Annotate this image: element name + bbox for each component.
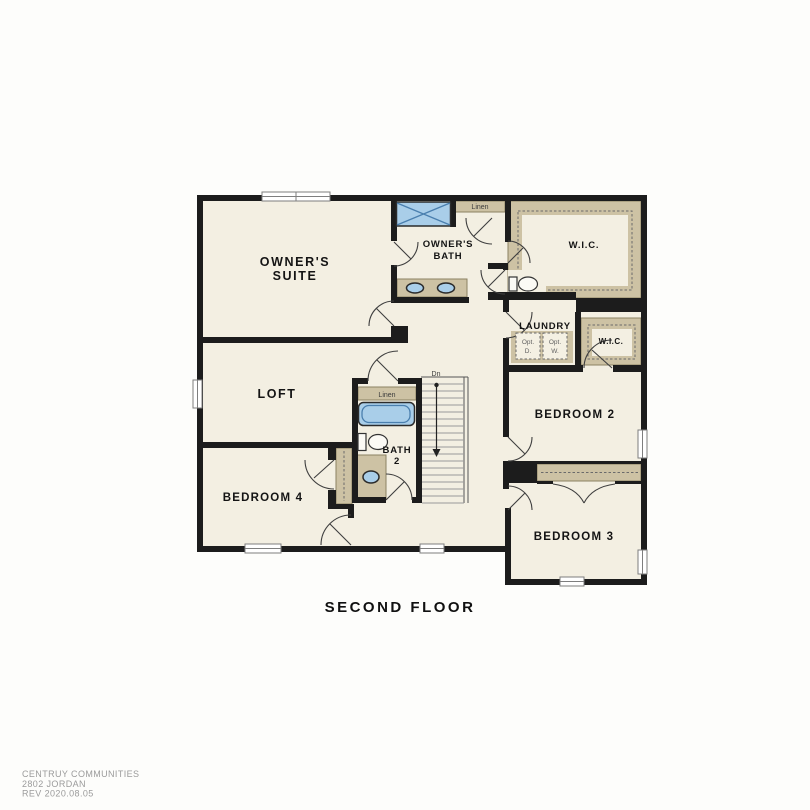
opt-dryer-box [516,333,540,359]
opt-washer-label: W. [551,348,559,355]
floor-plan-page: OWNER'S SUITE OWNER'S BATH W.I.C. LAUNDR… [0,0,810,810]
window [262,192,330,201]
sink-icon [407,283,424,293]
room-label-owners-bath: BATH [434,251,463,262]
linen-label: Linen [471,204,488,211]
floor-plan-svg: OWNER'S SUITE OWNER'S BATH W.I.C. LAUNDR… [0,0,810,810]
room-label-wic-owners: W.I.C. [569,240,600,251]
toilet-icon [519,277,538,291]
bedroom3-closet-shelf [537,464,641,481]
window [193,380,202,408]
opt-washer-box [543,333,567,359]
room-label-owners-suite: SUITE [273,269,318,283]
room-label-laundry: LAUNDRY [519,321,571,332]
footer: CENTRUY COMMUNITIES 2802 JORDAN REV 2020… [22,769,139,799]
room-label-bath-2: 2 [394,456,400,467]
room-label-owners-suite: OWNER'S [260,255,330,269]
room-label-wic-hall: W.I.C. [599,337,624,346]
window [560,577,584,586]
linen-label: Linen [378,392,395,399]
window [638,430,647,458]
room-label-bedroom-3: BEDROOM 3 [534,531,614,543]
sink-icon [438,283,455,293]
opt-washer-label: Opt. [549,339,561,346]
footer-line: REV 2020.08.05 [22,789,94,799]
toilet-tank-bath2 [358,434,366,451]
opt-dryer-label: D. [525,348,532,355]
page-title: SECOND FLOOR [325,599,476,616]
window [420,544,444,553]
opt-dryer-label: Opt. [522,339,534,346]
stair-direction-label: Dn [432,371,441,378]
footer-line: 2802 JORDAN [22,779,86,789]
room-label-loft: LOFT [257,387,296,401]
room-label-bath-2: BATH [383,445,412,456]
window [245,544,281,553]
footer-line: CENTRUY COMMUNITIES [22,769,139,779]
window [638,550,647,574]
toilet-tank-owners [509,277,517,291]
room-label-owners-bath: OWNER'S [423,239,474,250]
room-label-bedroom-4: BEDROOM 4 [223,492,303,504]
room-label-bedroom-2: BEDROOM 2 [535,409,615,421]
sink-icon [363,471,379,483]
